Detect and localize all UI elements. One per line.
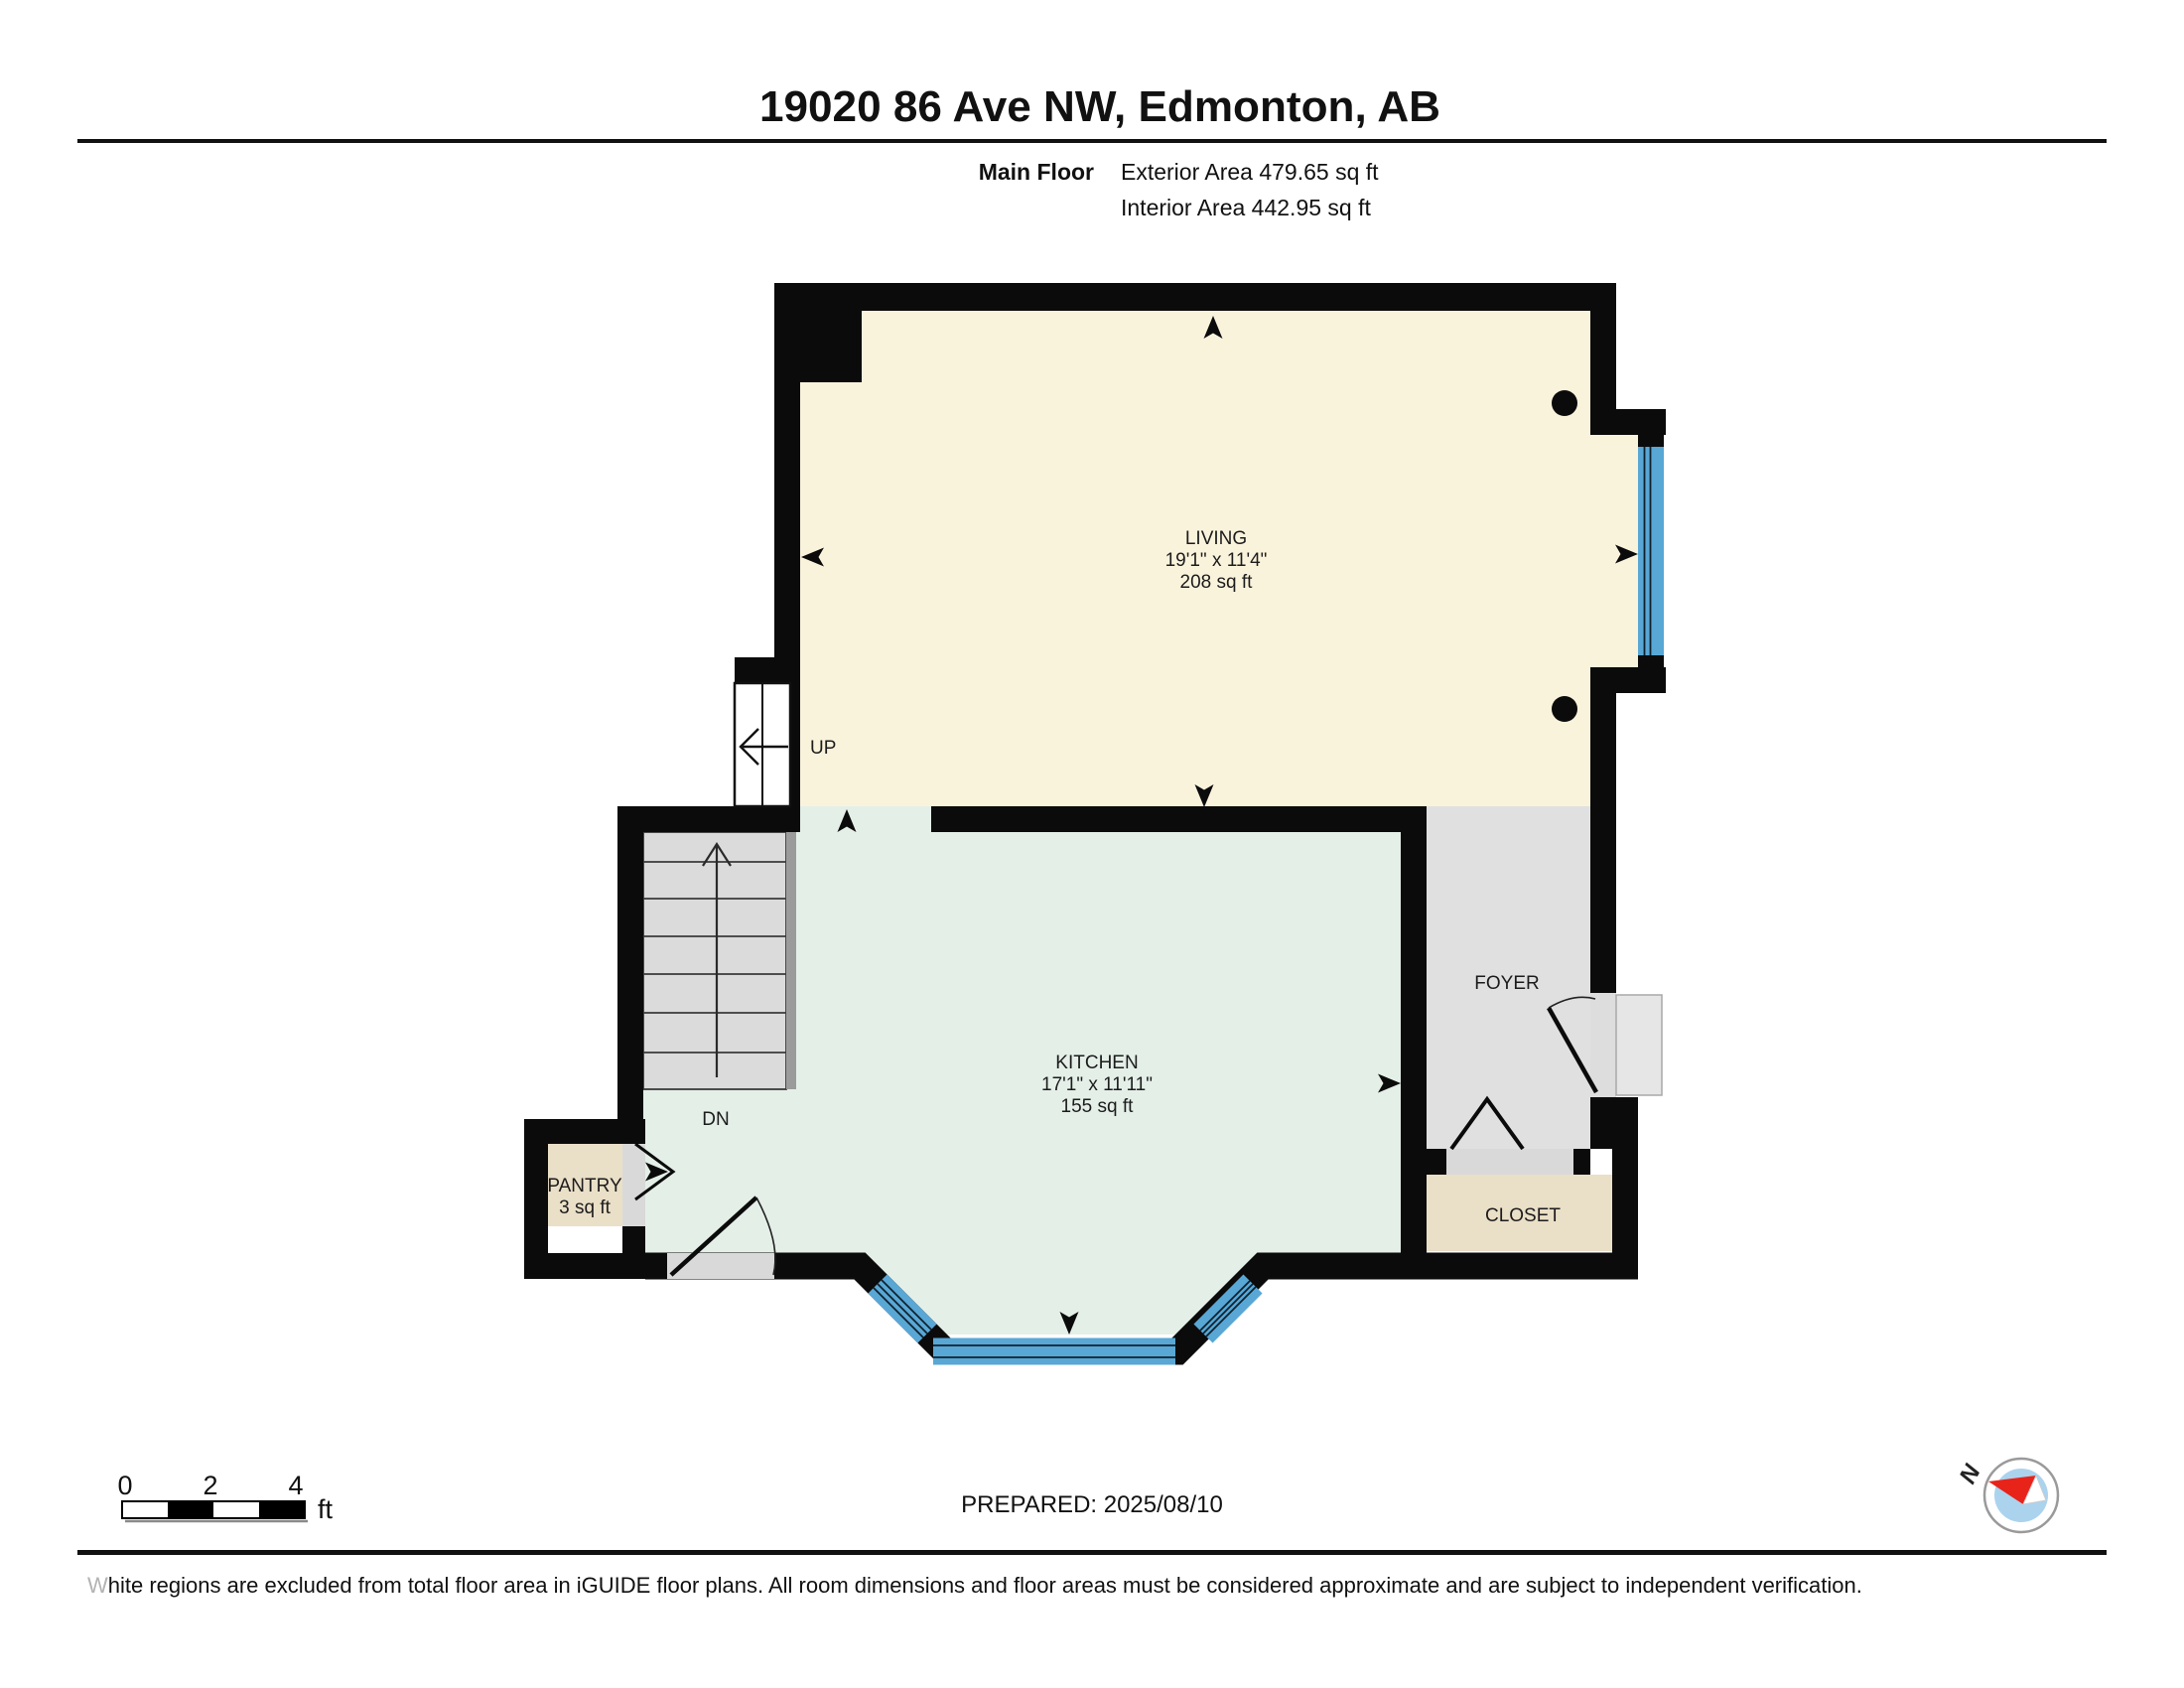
compass-north-label: N bbox=[1955, 1460, 1986, 1488]
exterior-area-label: Exterior Area 479.65 sq ft bbox=[1121, 159, 1379, 185]
closet-door-threshold bbox=[1446, 1149, 1573, 1175]
pantry-excluded-region bbox=[548, 1226, 622, 1253]
scale-bar: 0 2 4 ft bbox=[117, 1471, 333, 1524]
floor-label: Main Floor bbox=[979, 159, 1094, 185]
entry-door-opening bbox=[1590, 993, 1616, 1097]
living-room-area: 208 sq ft bbox=[1180, 572, 1254, 593]
wall-living-kitchen bbox=[931, 806, 1401, 832]
living-room-name: LIVING bbox=[1185, 528, 1247, 549]
stairs-up-label: UP bbox=[810, 738, 836, 759]
disclaimer-text: White regions are excluded from total fl… bbox=[87, 1573, 1862, 1598]
scale-bar-segment bbox=[168, 1501, 213, 1518]
footer: PREPARED: 2025/08/10 White regions are e… bbox=[77, 1491, 2107, 1598]
column-post bbox=[1552, 390, 1577, 416]
foyer-name: FOYER bbox=[1474, 973, 1539, 994]
wall-bay-bottom bbox=[1590, 667, 1666, 693]
floor-plan-canvas: 19020 86 Ave NW, Edmonton, AB Main Floor… bbox=[0, 0, 2184, 1688]
wall-living-left bbox=[774, 283, 800, 657]
prepared-date: PREPARED: 2025/08/10 bbox=[961, 1491, 1223, 1518]
staircase-down bbox=[643, 832, 796, 1089]
upstair-indicator bbox=[735, 683, 790, 806]
scale-unit-label: ft bbox=[318, 1494, 334, 1524]
header: 19020 86 Ave NW, Edmonton, AB Main Floor… bbox=[77, 82, 2107, 220]
column-post bbox=[1552, 696, 1577, 722]
scale-tick-4: 4 bbox=[288, 1471, 303, 1500]
wall-living-top bbox=[774, 283, 1616, 311]
pantry-area: 3 sq ft bbox=[559, 1197, 611, 1218]
wall-upstair-side bbox=[790, 683, 800, 806]
compass: N bbox=[1955, 1459, 2058, 1532]
stair-treads bbox=[643, 832, 786, 1089]
kitchen-dimensions: 17'1" x 11'11" bbox=[1041, 1074, 1153, 1095]
closet-name: CLOSET bbox=[1485, 1205, 1561, 1226]
scale-bar-segment bbox=[259, 1501, 305, 1518]
wall-stairwell-left bbox=[617, 806, 643, 1144]
living-room-dimensions: 19'1" x 11'4" bbox=[1165, 550, 1268, 571]
stair-stringer bbox=[786, 832, 796, 1089]
scale-tick-0: 0 bbox=[117, 1471, 132, 1500]
disclaimer-body: hite regions are excluded from total flo… bbox=[108, 1573, 1862, 1598]
scale-tick-2: 2 bbox=[203, 1471, 217, 1500]
pantry-name: PANTRY bbox=[547, 1176, 622, 1196]
interior-area-label: Interior Area 442.95 sq ft bbox=[1121, 195, 1371, 220]
header-divider bbox=[77, 139, 2107, 143]
wall-stairwell-top bbox=[617, 806, 800, 832]
wall-living-right-upper bbox=[1590, 283, 1616, 409]
wall-right-connector bbox=[1590, 1097, 1638, 1149]
page-title: 19020 86 Ave NW, Edmonton, AB bbox=[759, 82, 1440, 131]
wall-kitchen-foyer bbox=[1401, 806, 1427, 1149]
entry-door-landing bbox=[1616, 995, 1662, 1095]
kitchen-name: KITCHEN bbox=[1055, 1053, 1138, 1073]
disclaimer-lead-char: W bbox=[87, 1573, 108, 1598]
wall-bay-top bbox=[1590, 409, 1666, 435]
pantry-door-threshold bbox=[622, 1144, 645, 1226]
wall-upstair-cap bbox=[735, 657, 800, 683]
kitchen-area: 155 sq ft bbox=[1061, 1096, 1135, 1117]
footer-divider bbox=[77, 1550, 2107, 1555]
floor-plan-page: 19020 86 Ave NW, Edmonton, AB Main Floor… bbox=[0, 0, 2184, 1688]
window-jamb-bottom bbox=[1638, 655, 1664, 667]
window-jamb-top bbox=[1638, 435, 1664, 447]
stairs-down-label: DN bbox=[702, 1109, 729, 1130]
